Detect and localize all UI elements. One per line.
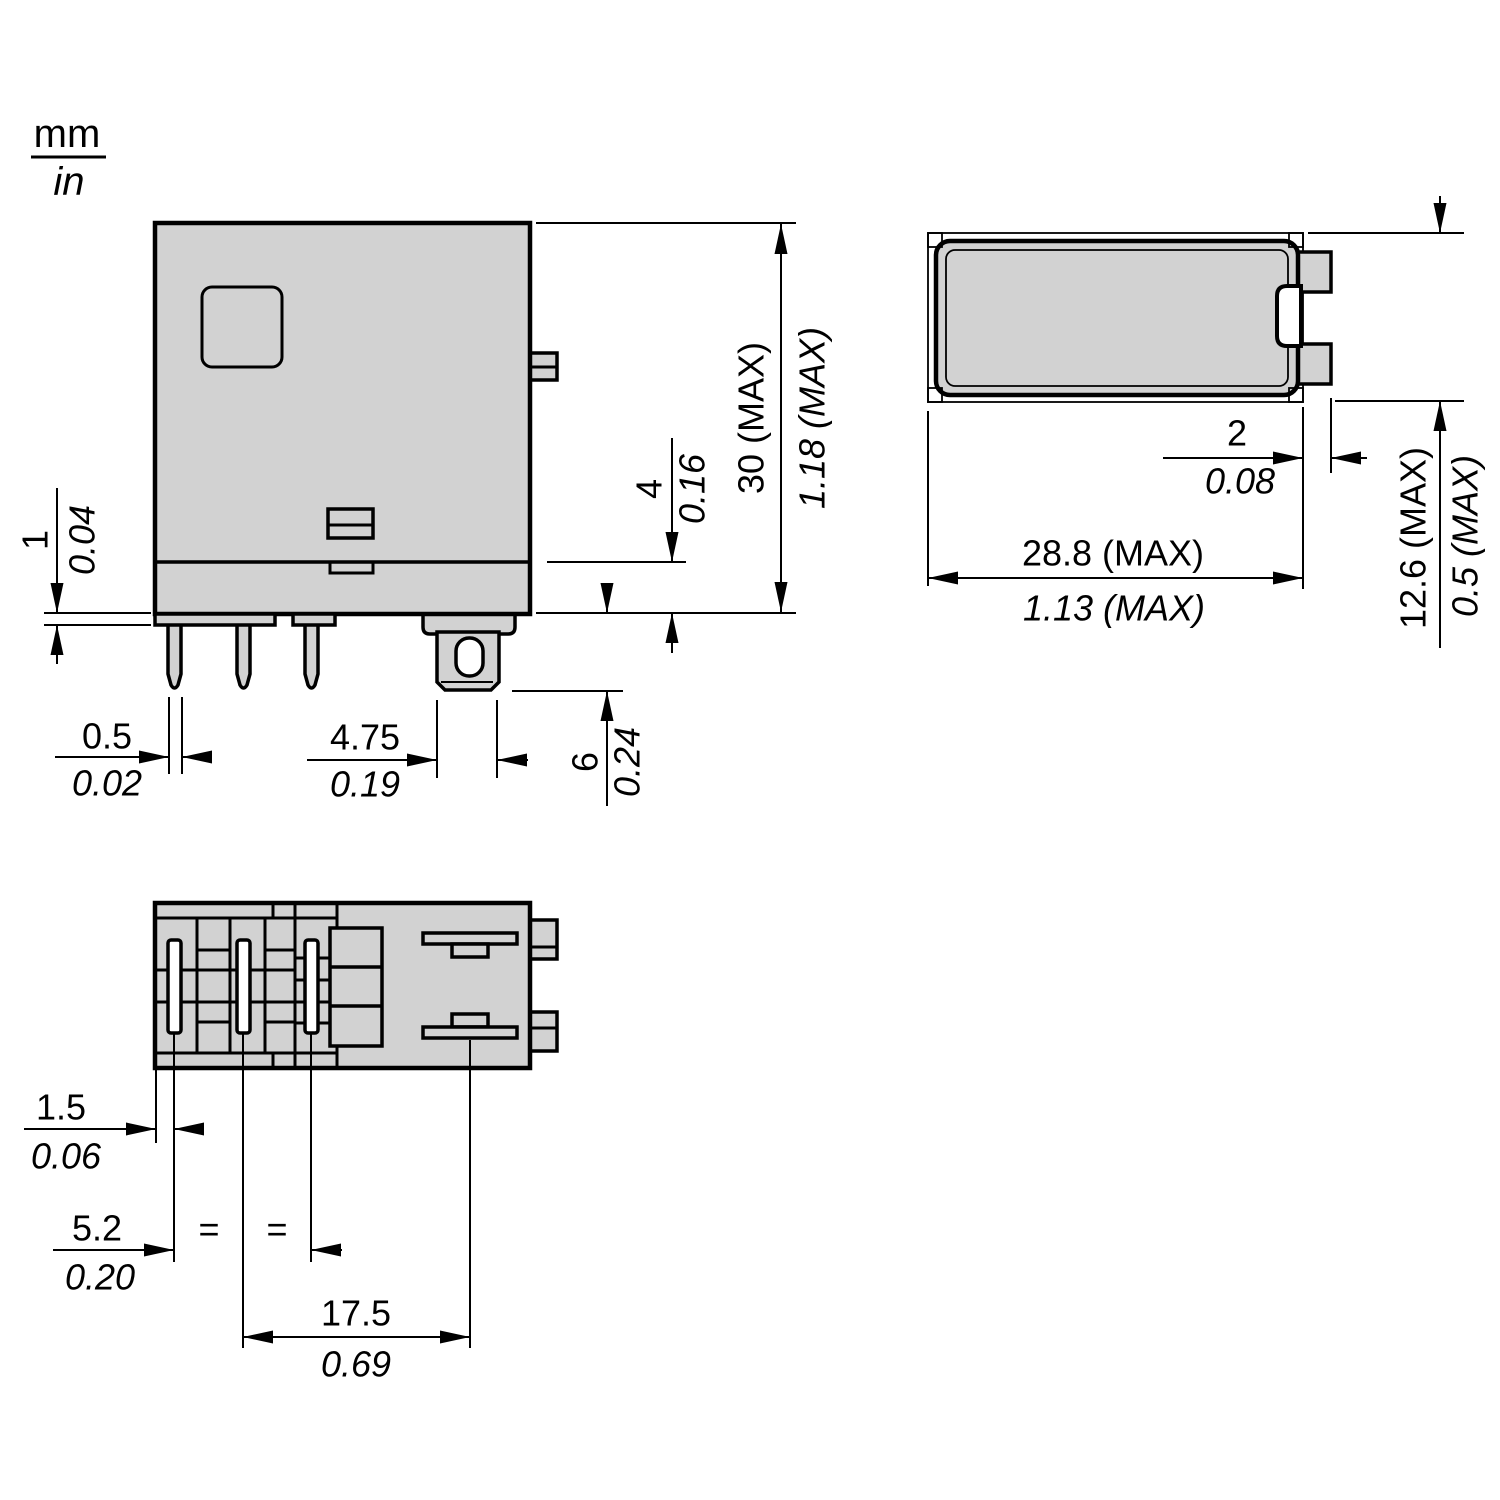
bottom-view-tab-upper [530, 920, 557, 959]
dim-step-height-in: 0.04 [62, 505, 103, 575]
dim-terminal-width-in: 0.19 [330, 764, 400, 805]
dim-base-height-mm: 4 [629, 479, 670, 499]
dim-body-width-in: 1.13 (MAX) [1023, 588, 1205, 629]
dim-tab-protrusion-in: 0.08 [1205, 461, 1275, 502]
dim-pin-pitch-mm: 5.2 [72, 1208, 122, 1249]
pin-1 [168, 622, 181, 688]
body-foot-left [155, 614, 275, 625]
pin-2 [237, 622, 250, 688]
units-mm-label: mm [34, 112, 101, 156]
dim-body-width-mm: 28.8 (MAX) [1022, 533, 1204, 574]
dim-step-height: 1 0.04 [15, 488, 152, 664]
dim-edge-to-first-pin: 1.5 0.06 [24, 1087, 202, 1177]
dim-terminal-width: 4.75 0.19 [307, 700, 528, 805]
pin-3 [305, 622, 318, 688]
dim-tab-protrusion-mm: 2 [1227, 413, 1247, 454]
terminal-bar-lower [423, 1027, 517, 1038]
pin-slot-2 [237, 940, 250, 1033]
dim-base-height: 4 0.16 [547, 438, 713, 653]
relay-body-top [936, 241, 1298, 395]
coil-block [330, 928, 382, 1046]
dim-pin-to-terminal-mm: 17.5 [321, 1293, 391, 1334]
body-foot-center [293, 614, 335, 625]
relay-body-front [155, 223, 530, 614]
dim-body-height-mm: 30 (MAX) [731, 342, 772, 494]
front-view: 1 0.04 0.5 0.02 4.75 0.19 4 0.16 [15, 223, 833, 806]
dim-edge-to-first-pin-in: 0.06 [31, 1136, 102, 1177]
units-legend: mm in [31, 112, 106, 204]
dim-terminal-width-mm: 4.75 [330, 717, 400, 758]
dim-base-height-in: 0.16 [672, 453, 713, 524]
bottom-view: 1.5 0.06 5.2 0.20 = = 17.5 0.69 [24, 903, 557, 1385]
pin-slot-1 [168, 940, 181, 1033]
dim-pin-pitch: 5.2 0.20 = = [53, 1208, 342, 1298]
dim-body-depth: 12.6 (MAX) 0.5 (MAX) [1308, 196, 1486, 648]
drawing-canvas: mm in 1 0.04 [0, 0, 1500, 1500]
equal-mark-1: = [198, 1209, 219, 1250]
units-in-label: in [53, 160, 84, 204]
dim-pin-to-terminal: 17.5 0.69 [243, 1293, 470, 1385]
top-view-tab-lower [1295, 344, 1331, 384]
equal-mark-2: = [266, 1209, 287, 1250]
terminal-tab-lower [452, 1014, 488, 1027]
right-edge-notch [1277, 286, 1301, 346]
dim-step-height-mm: 1 [15, 530, 56, 550]
terminal-tab-upper [452, 944, 488, 957]
dim-pin-to-terminal-in: 0.69 [321, 1344, 391, 1385]
dim-pin-pitch-in: 0.20 [65, 1257, 135, 1298]
relay-dimension-drawing: mm in 1 0.04 [0, 0, 1500, 1500]
dim-pin-thickness: 0.5 0.02 [55, 697, 211, 804]
dim-body-height: 30 (MAX) 1.18 (MAX) [536, 223, 833, 613]
top-view: 2 0.08 28.8 (MAX) 1.13 (MAX) 12.6 (MAX) … [928, 196, 1486, 648]
bottom-view-tab-lower [530, 1012, 557, 1051]
dim-pin-thickness-in: 0.02 [72, 763, 142, 804]
dim-pin-length: 6 0.24 [512, 584, 648, 806]
dim-body-depth-mm: 12.6 (MAX) [1393, 447, 1434, 629]
dim-body-depth-in: 0.5 (MAX) [1445, 455, 1486, 617]
leader-lines [156, 1033, 470, 1348]
dim-edge-to-first-pin-mm: 1.5 [36, 1087, 86, 1128]
dim-body-height-in: 1.18 (MAX) [792, 327, 833, 509]
dim-pin-length-mm: 6 [565, 752, 606, 772]
dim-pin-thickness-mm: 0.5 [82, 716, 132, 757]
pin-slot-3 [305, 940, 318, 1033]
terminal-hole [456, 638, 483, 676]
dim-pin-length-in: 0.24 [607, 727, 648, 797]
